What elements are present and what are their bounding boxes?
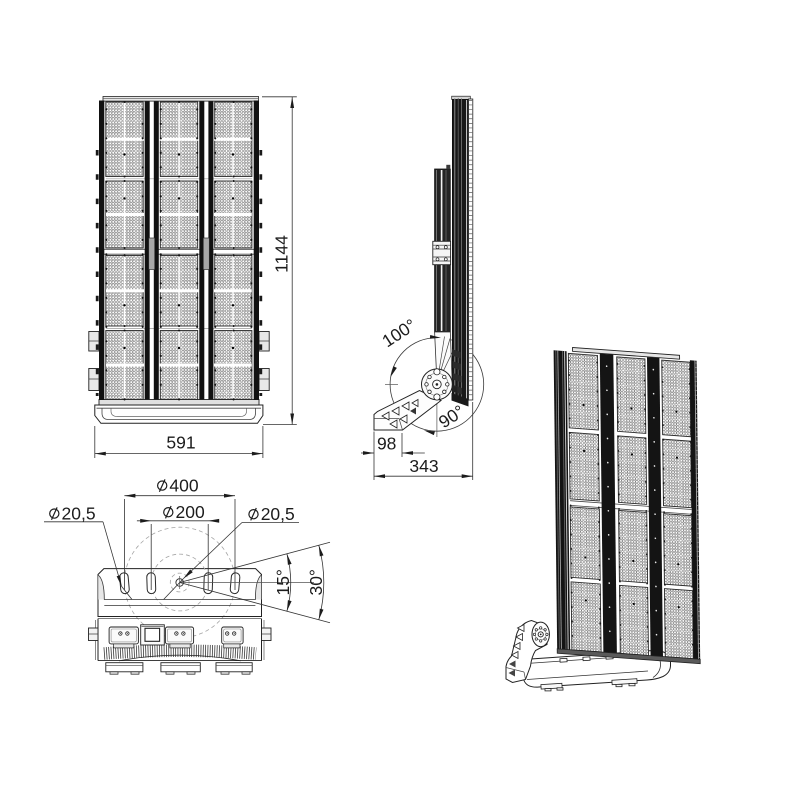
svg-text:30°: 30° — [306, 569, 326, 595]
svg-text:591: 591 — [166, 433, 195, 453]
svg-text:90°: 90° — [435, 401, 468, 432]
svg-text:200: 200 — [176, 502, 205, 522]
svg-text:98: 98 — [377, 434, 396, 454]
svg-text:20,5: 20,5 — [261, 504, 295, 524]
svg-text:15°: 15° — [273, 569, 293, 595]
svg-text:20,5: 20,5 — [62, 503, 96, 523]
svg-text:1144: 1144 — [272, 235, 292, 273]
svg-text:100°: 100° — [378, 315, 419, 351]
svg-text:400: 400 — [169, 475, 198, 495]
svg-text:343: 343 — [409, 456, 438, 476]
